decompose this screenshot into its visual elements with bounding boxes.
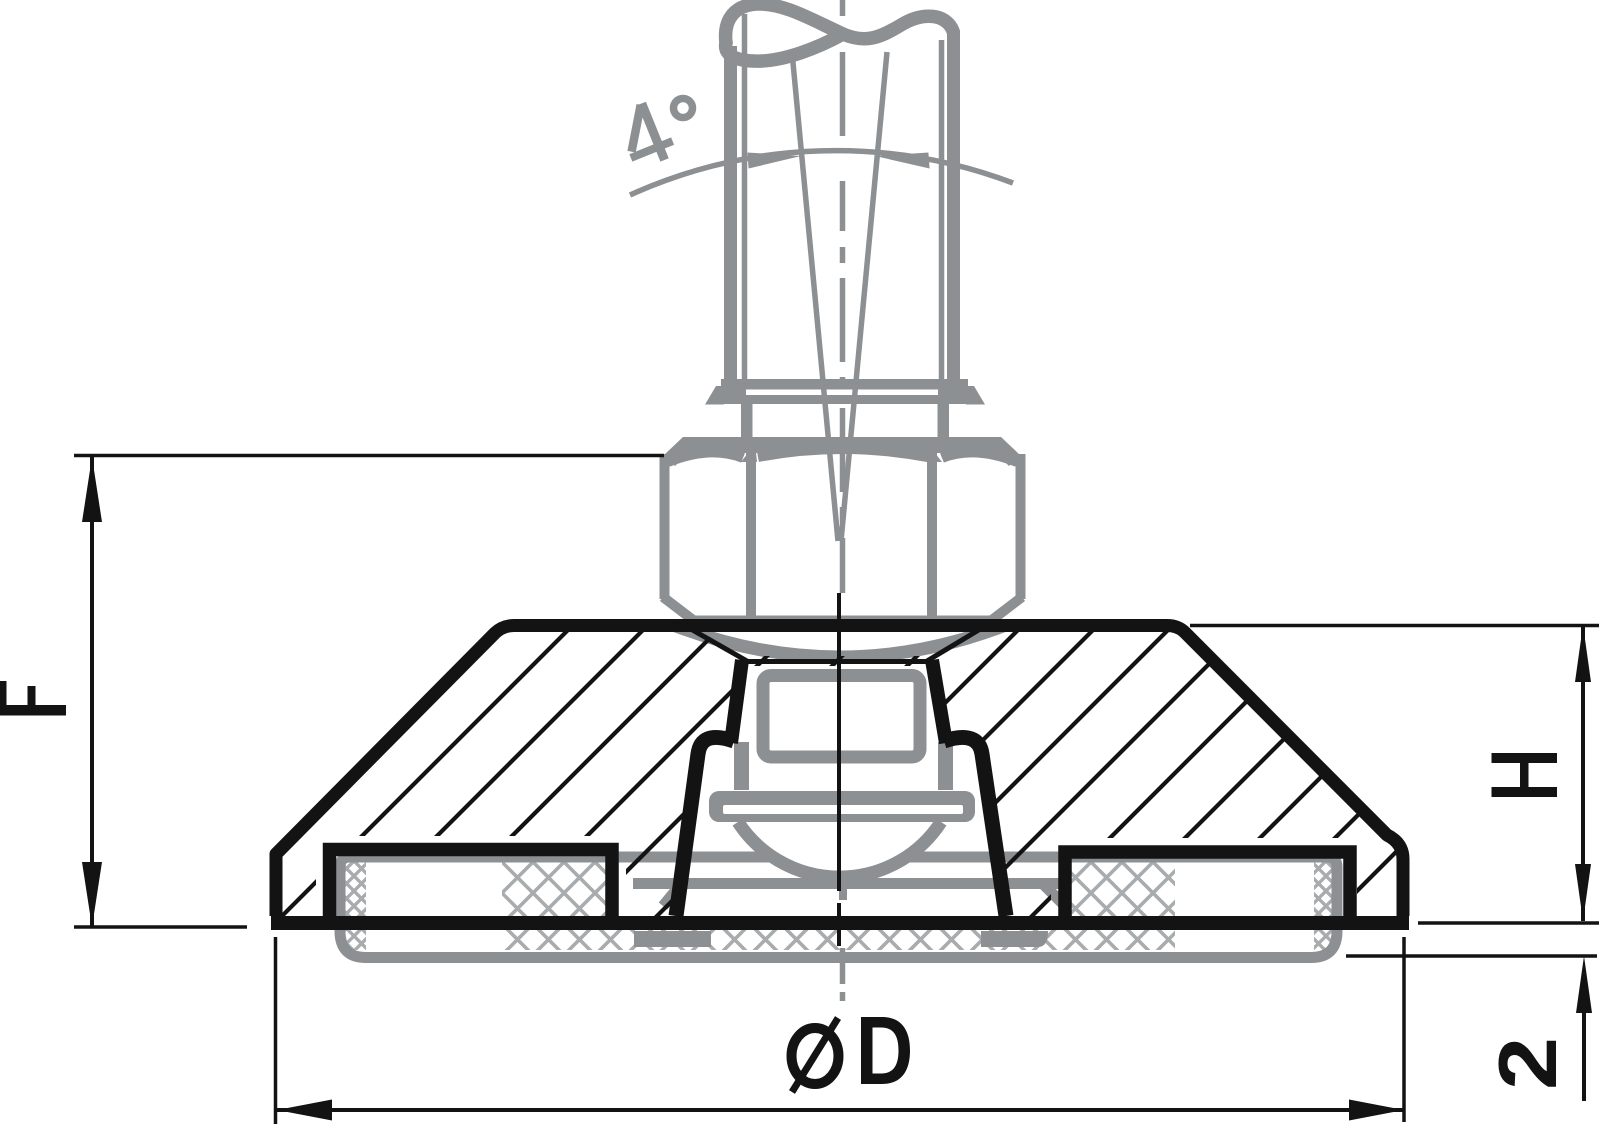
svg-text:2: 2 [1481,1037,1574,1090]
